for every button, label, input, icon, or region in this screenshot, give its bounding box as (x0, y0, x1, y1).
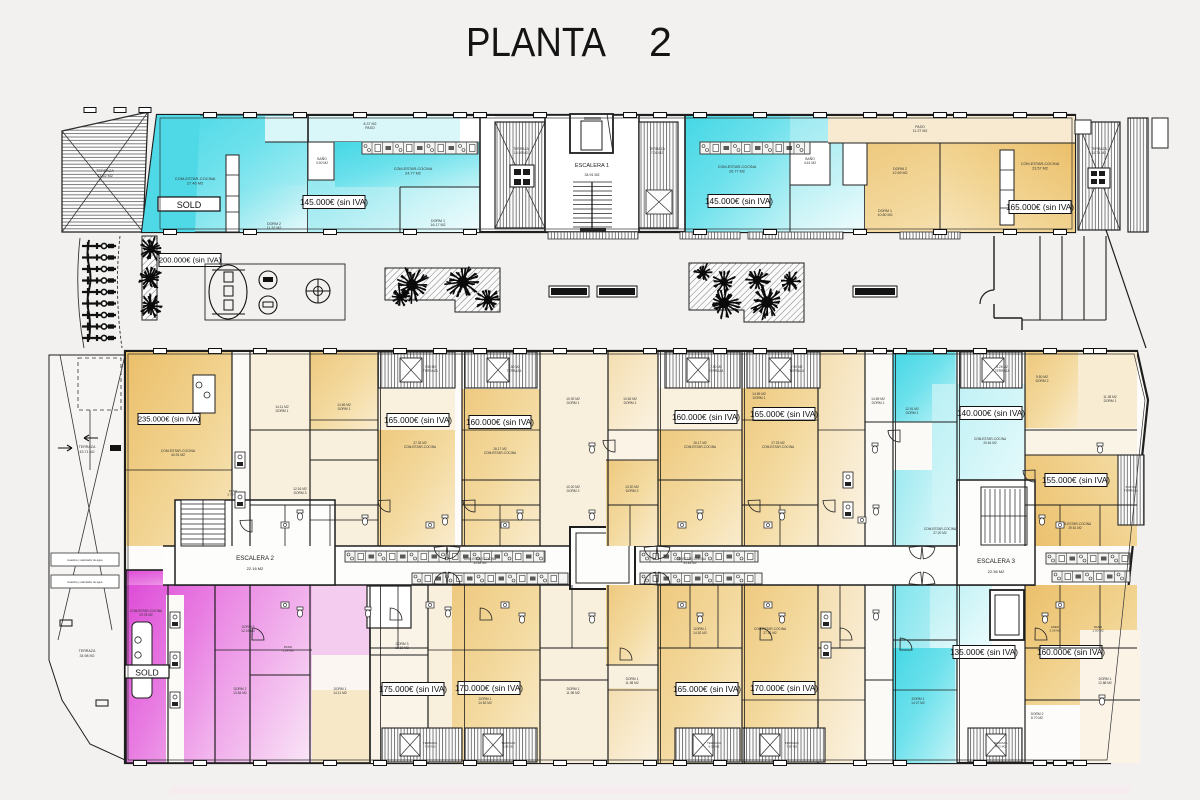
svg-text:27.20 M2: 27.20 M2 (933, 531, 947, 535)
svg-text:ESCALERA 2: ESCALERA 2 (236, 555, 274, 562)
svg-text:3.24 M2: 3.24 M2 (282, 649, 293, 653)
svg-text:44.91 M2: 44.91 M2 (171, 453, 185, 457)
svg-text:DORM 1: DORM 1 (753, 396, 766, 400)
svg-text:12.69 M2: 12.69 M2 (893, 171, 908, 175)
svg-text:34.91 M2: 34.91 M2 (585, 173, 600, 177)
svg-text:COM-ESTAR-COCINA: COM-ESTAR-COCINA (484, 451, 517, 455)
svg-text:22.16 M2: 22.16 M2 (247, 566, 264, 571)
svg-text:TERRAZA: TERRAZA (96, 169, 114, 173)
svg-text:TERRAZA: TERRAZA (79, 649, 96, 653)
svg-text:COM-ESTAR-COCINA: COM-ESTAR-COCINA (762, 445, 795, 449)
svg-text:160.000€ (sin IVA): 160.000€ (sin IVA) (672, 412, 740, 422)
svg-text:7.50 M2: 7.50 M2 (425, 745, 436, 749)
svg-text:135.000€ (sin IVA): 135.000€ (sin IVA) (950, 647, 1018, 657)
svg-text:DORM 1: DORM 1 (338, 407, 351, 411)
svg-text:SOLD: SOLD (177, 200, 202, 210)
svg-text:12.19 M2: 12.19 M2 (241, 629, 255, 633)
svg-text:29.61 M2: 29.61 M2 (1068, 526, 1082, 530)
svg-text:14.52 M2: 14.52 M2 (693, 631, 707, 635)
svg-text:11.98 M2: 11.98 M2 (625, 681, 639, 685)
svg-text:DORM 2: DORM 2 (626, 489, 639, 493)
svg-text:29.78 M2: 29.78 M2 (139, 613, 153, 617)
svg-text:14.52 M2: 14.52 M2 (478, 701, 492, 705)
svg-text:165.000€ (sin IVA): 165.000€ (sin IVA) (750, 409, 818, 419)
svg-text:PLANTA: PLANTA (466, 19, 607, 65)
svg-text:lavadora y calentador de agua: lavadora y calentador de agua (68, 580, 103, 584)
svg-text:TERRAZA: TERRAZA (423, 369, 439, 373)
svg-text:27.46 M2: 27.46 M2 (187, 181, 204, 186)
svg-text:14.27 M2: 14.27 M2 (911, 701, 925, 705)
svg-text:8.70 M2: 8.70 M2 (1031, 716, 1043, 720)
svg-text:140.000€ (sin IVA): 140.000€ (sin IVA) (957, 408, 1025, 418)
svg-text:SOLD: SOLD (135, 668, 158, 678)
svg-text:DORM 1: DORM 1 (1104, 399, 1117, 403)
svg-text:COM-ESTAR-COCINA: COM-ESTAR-COCINA (718, 165, 757, 169)
svg-text:34.98 M2: 34.98 M2 (80, 654, 95, 658)
svg-text:3.28 M2: 3.28 M2 (1049, 629, 1060, 633)
svg-text:7.50 M2: 7.50 M2 (786, 745, 797, 749)
svg-text:1.50 M2: 1.50 M2 (1092, 629, 1103, 633)
svg-text:20.64 M2: 20.64 M2 (983, 441, 997, 445)
svg-text:COM-ESTAR-COCINA: COM-ESTAR-COCINA (394, 167, 433, 171)
svg-text:2: 2 (649, 19, 672, 65)
svg-text:10.80 M2: 10.80 M2 (878, 213, 893, 217)
svg-text:43.71 M2: 43.71 M2 (80, 450, 95, 454)
svg-text:26.77 M2: 26.77 M2 (729, 169, 745, 173)
svg-text:DORM 2: DORM 2 (1036, 379, 1049, 383)
svg-text:160.000€ (sin IVA): 160.000€ (sin IVA) (466, 417, 534, 427)
svg-text:13.84 M2: 13.84 M2 (233, 691, 247, 695)
svg-text:DORM 3: DORM 3 (294, 491, 307, 495)
svg-text:11.37 M2: 11.37 M2 (913, 129, 928, 133)
svg-text:lavadora y calentador de agua: lavadora y calentador de agua (68, 558, 103, 562)
svg-text:11.74 M2: 11.74 M2 (1092, 151, 1106, 155)
svg-text:170.000€ (sin IVA): 170.000€ (sin IVA) (750, 683, 818, 693)
svg-text:14.69 M2: 14.69 M2 (514, 151, 528, 155)
svg-text:DORM 1: DORM 1 (906, 411, 919, 415)
svg-text:12.88 M2: 12.88 M2 (1098, 681, 1112, 685)
svg-text:7.05 M2: 7.05 M2 (651, 151, 663, 155)
svg-text:23.57 M2: 23.57 M2 (1032, 166, 1048, 170)
svg-text:145.000€ (sin IVA): 145.000€ (sin IVA) (300, 197, 368, 207)
svg-text:235.000€ (sin IVA): 235.000€ (sin IVA) (138, 415, 201, 424)
svg-text:PASO: PASO (365, 126, 375, 130)
svg-text:6.55 M2: 6.55 M2 (709, 745, 720, 749)
svg-text:24.77 M2: 24.77 M2 (405, 171, 421, 175)
svg-text:6.55 M2: 6.55 M2 (503, 745, 514, 749)
svg-text:165.000€ (sin IVA): 165.000€ (sin IVA) (384, 415, 452, 425)
svg-text:ESCALERA 1: ESCALERA 1 (575, 163, 609, 169)
svg-text:DORM 1: DORM 1 (624, 401, 637, 405)
svg-text:TERRAZA: TERRAZA (709, 369, 725, 373)
svg-text:DORM 1: DORM 1 (276, 409, 289, 413)
svg-text:4.72 M2: 4.72 M2 (995, 745, 1006, 749)
svg-text:DORM 1: DORM 1 (567, 401, 580, 405)
svg-text:175.000€ (sin IVA): 175.000€ (sin IVA) (379, 684, 447, 694)
svg-text:4.61 M2: 4.61 M2 (804, 161, 816, 165)
svg-text:170.000€ (sin IVA): 170.000€ (sin IVA) (455, 683, 523, 693)
svg-text:11.98 M2: 11.98 M2 (566, 691, 580, 695)
svg-text:145.000€ (sin IVA): 145.000€ (sin IVA) (705, 196, 773, 206)
svg-text:TERRAZA: TERRAZA (507, 369, 523, 373)
svg-text:COM-ESTAR-COCINA: COM-ESTAR-COCINA (404, 445, 437, 449)
svg-text:16.17 M2: 16.17 M2 (431, 223, 446, 227)
svg-text:3.90 M2: 3.90 M2 (316, 161, 328, 165)
svg-text:TERRAZA: TERRAZA (79, 445, 96, 449)
svg-text:200.000€ (sin IVA): 200.000€ (sin IVA) (159, 256, 222, 265)
svg-text:TERRAZA: TERRAZA (789, 369, 805, 373)
svg-text:33.83 M2: 33.83 M2 (473, 561, 487, 565)
svg-text:14.11 M2: 14.11 M2 (333, 691, 347, 695)
svg-text:ESCALERA 3: ESCALERA 3 (977, 558, 1015, 565)
svg-text:22.36 M2: 22.36 M2 (988, 569, 1005, 574)
svg-text:COM-ESTAR-COCINA: COM-ESTAR-COCINA (1021, 162, 1060, 166)
svg-text:73.52 M2: 73.52 M2 (97, 174, 113, 178)
svg-text:155.000€ (sin IVA): 155.000€ (sin IVA) (1042, 475, 1110, 485)
svg-text:DORM 1: DORM 1 (872, 401, 885, 405)
svg-text:COM-ESTAR-COCINA: COM-ESTAR-COCINA (684, 445, 717, 449)
svg-text:DORM 2: DORM 2 (567, 489, 580, 493)
svg-text:33.83 M2: 33.83 M2 (683, 561, 697, 565)
svg-text:11.32 M2: 11.32 M2 (267, 226, 282, 230)
svg-text:160.000€ (sin IVA): 160.000€ (sin IVA) (1037, 647, 1105, 657)
svg-text:165.000€ (sin IVA): 165.000€ (sin IVA) (1006, 202, 1074, 212)
svg-text:TERRAZA: TERRAZA (995, 369, 1011, 373)
svg-text:165.000€ (sin IVA): 165.000€ (sin IVA) (673, 684, 741, 694)
